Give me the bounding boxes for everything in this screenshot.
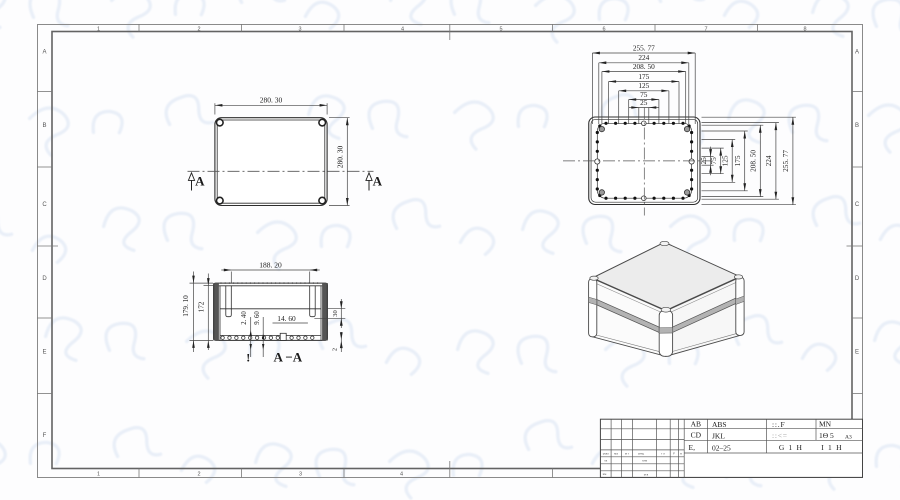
svg-text:30: 30 — [332, 310, 339, 317]
svg-text:B: B — [855, 123, 859, 129]
svg-text:255. 77: 255. 77 — [781, 150, 790, 172]
svg-text:A: A — [42, 50, 46, 56]
svg-text:ям: ям — [603, 472, 607, 476]
svg-text:179. 10: 179. 10 — [182, 295, 190, 317]
svg-text:D: D — [42, 276, 47, 282]
svg-text:75: 75 — [709, 157, 718, 165]
svg-text:9. 60: 9. 60 — [254, 311, 261, 325]
svg-text:E: E — [855, 350, 859, 356]
svg-text:та: та — [604, 458, 607, 462]
svg-text:1: 1 — [97, 26, 100, 32]
svg-text:175: 175 — [638, 72, 649, 81]
svg-text:208. 50: 208. 50 — [633, 62, 655, 71]
svg-text:F: F — [43, 433, 47, 439]
svg-text:ABS: ABS — [712, 420, 727, 429]
svg-text:2: 2 — [197, 471, 200, 477]
svg-text:4: 4 — [401, 26, 404, 32]
svg-text:6: 6 — [602, 26, 605, 32]
svg-text:125: 125 — [638, 81, 649, 90]
svg-text:5: 5 — [499, 26, 502, 32]
svg-text:224: 224 — [638, 53, 649, 62]
svg-text:C: C — [42, 202, 47, 208]
svg-text:C: C — [855, 202, 860, 208]
svg-text:3: 3 — [299, 471, 302, 477]
svg-text:255. 77: 255. 77 — [633, 43, 655, 52]
svg-text:F: F — [673, 452, 675, 456]
svg-text:175: 175 — [733, 155, 742, 166]
svg-text:7: 7 — [704, 26, 707, 32]
svg-text:14. 60: 14. 60 — [277, 314, 296, 323]
svg-text:280. 30: 280. 30 — [336, 146, 345, 169]
svg-text:A: A — [195, 173, 205, 188]
svg-text:м в: м в — [644, 473, 649, 477]
svg-text:2. 40: 2. 40 — [241, 311, 248, 325]
svg-text:125: 125 — [721, 155, 730, 166]
svg-text:A: A — [373, 173, 383, 188]
svg-text:172: 172 — [197, 301, 205, 312]
svg-text:2: 2 — [197, 26, 200, 32]
svg-text:::.F: ::.F — [772, 420, 785, 429]
svg-text:D: D — [855, 276, 860, 282]
svg-text:B: B — [42, 123, 46, 129]
svg-text:1Θ 5: 1Θ 5 — [819, 431, 834, 440]
svg-text:м т: м т — [625, 452, 630, 456]
svg-text:1: 1 — [97, 471, 100, 477]
svg-text:тим: тим — [642, 458, 647, 462]
svg-text:G 1 H: G 1 H — [779, 443, 803, 452]
svg-text:280. 30: 280. 30 — [260, 96, 283, 105]
svg-text:E,: E, — [689, 443, 696, 452]
svg-text:224: 224 — [764, 155, 773, 166]
svg-text:02–25: 02–25 — [712, 444, 731, 453]
svg-text:208. 50: 208. 50 — [749, 150, 758, 172]
svg-text:JKL: JKL — [712, 431, 725, 440]
svg-text:8: 8 — [803, 26, 806, 32]
svg-text:ма: ма — [614, 452, 618, 456]
svg-text:E: E — [42, 350, 46, 356]
svg-text:188. 20: 188. 20 — [259, 260, 282, 269]
svg-text:4: 4 — [400, 471, 403, 477]
svg-text:снкц: снкц — [638, 452, 644, 456]
svg-text:MN: MN — [819, 420, 832, 429]
svg-text:т л: т л — [661, 452, 665, 456]
svg-text:!: ! — [246, 350, 250, 364]
svg-text:I 1 H: I 1 H — [821, 443, 842, 452]
svg-text:A3: A3 — [845, 434, 852, 440]
svg-text:указ: указ — [603, 452, 610, 456]
svg-text:A −A: A −A — [273, 349, 302, 364]
svg-text:A: A — [855, 50, 859, 56]
svg-text:25: 25 — [699, 157, 708, 165]
svg-text:2: 2 — [333, 348, 339, 351]
svg-text:CD: CD — [691, 431, 702, 440]
svg-text:AB: AB — [691, 420, 701, 429]
svg-text:3: 3 — [298, 26, 301, 32]
svg-text:25: 25 — [640, 98, 648, 107]
svg-text:::<=: ::<= — [772, 431, 788, 440]
